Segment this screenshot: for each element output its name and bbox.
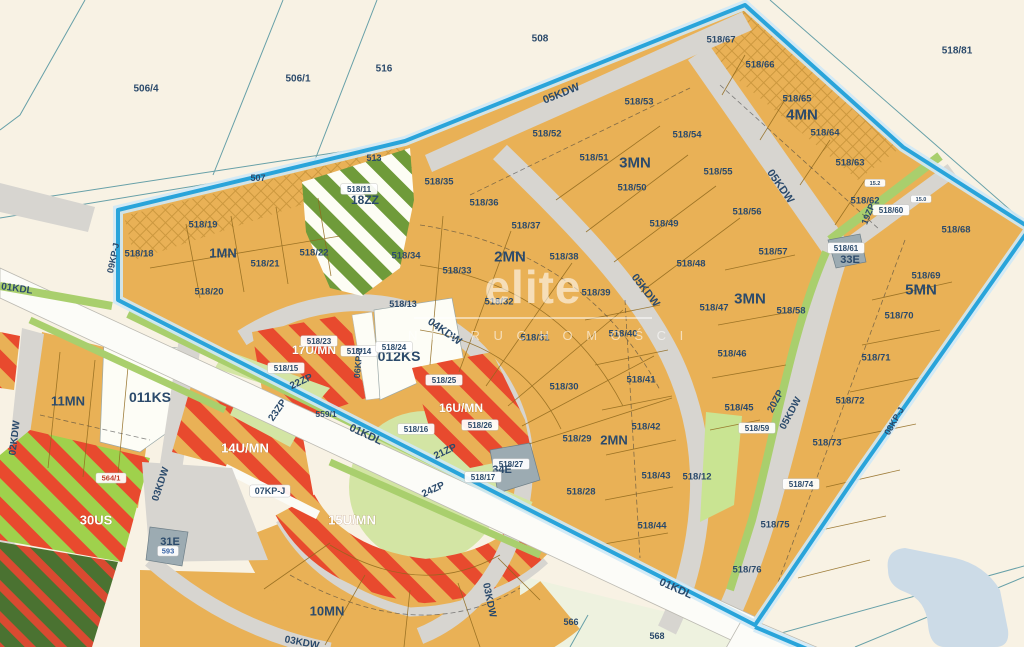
svg-text:593: 593 [162,547,175,556]
map-label: 2MN [494,248,526,265]
map-label: 518/68 [941,224,970,235]
svg-text:566: 566 [563,617,578,627]
svg-text:518/60: 518/60 [879,206,904,215]
svg-text:518/32: 518/32 [484,296,513,307]
svg-text:518/23: 518/23 [307,337,332,346]
svg-text:011KS: 011KS [129,389,171,405]
svg-text:518/58: 518/58 [776,305,805,316]
svg-text:518/19: 518/19 [188,219,217,230]
map-label: 518/57 [758,246,787,257]
svg-text:518/65: 518/65 [782,93,812,104]
map-label: 518/24 [376,342,413,353]
map-label: 518/40 [608,328,637,339]
map-label: 518/70 [884,310,913,321]
svg-text:518/25: 518/25 [432,376,457,385]
map-label: 518/75 [760,519,790,530]
svg-text:15U/MN: 15U/MN [328,513,376,528]
map-label: 518/66 [745,59,774,70]
svg-text:518/59: 518/59 [745,424,770,433]
svg-text:518/30: 518/30 [549,381,578,392]
map-label: 518/36 [469,197,498,208]
map-label: 518/12 [682,471,711,482]
map-label: 518/46 [717,348,746,359]
map-label: 518/59 [739,423,776,434]
svg-text:518/44: 518/44 [637,520,667,531]
svg-text:518/24: 518/24 [382,343,407,352]
map-label: 518/22 [299,247,328,258]
svg-text:518/66: 518/66 [745,59,774,70]
map-label: 011KS [129,389,171,405]
svg-text:518/36: 518/36 [469,197,498,208]
map-label: 518/18 [124,248,153,259]
svg-text:2MN: 2MN [600,433,627,448]
map-label: 518/60 [873,205,910,216]
map-canvas[interactable]: 506/4506/1516508513507518/81568566518/19… [0,0,1024,647]
svg-text:518/47: 518/47 [699,302,728,313]
svg-text:518/70: 518/70 [884,310,913,321]
svg-text:518/12: 518/12 [682,471,711,482]
svg-text:518/63: 518/63 [835,157,864,168]
map-label: 518/48 [676,258,705,269]
svg-text:518/43: 518/43 [641,470,670,481]
map-label: 3MN [734,290,766,307]
svg-text:518/81: 518/81 [942,46,973,57]
map-label: 518/73 [812,437,841,448]
map-label: 518/20 [194,286,223,297]
map-label: 518/50 [617,182,646,193]
svg-text:518/61: 518/61 [834,244,859,253]
svg-text:518/20: 518/20 [194,286,223,297]
svg-text:518/57: 518/57 [758,246,787,257]
map-label: 518/41 [626,374,656,385]
map-label: 518/69 [911,270,940,281]
svg-text:33E: 33E [840,254,860,266]
svg-text:508: 508 [532,34,549,45]
map-label: 2MN [600,433,627,448]
map-label: 559/1 [315,409,337,419]
svg-text:4MN: 4MN [786,106,818,123]
svg-text:518/22: 518/22 [299,247,328,258]
svg-text:30US: 30US [80,513,113,528]
map-label: 518/38 [549,251,578,262]
svg-text:518/55: 518/55 [703,166,733,177]
svg-text:518/33: 518/33 [442,265,471,276]
svg-text:1MN: 1MN [209,246,236,261]
map-label: 518/52 [532,128,561,139]
map-label: 518/39 [581,287,610,298]
svg-text:518/13: 518/13 [389,299,417,309]
map-label: 518/43 [641,470,670,481]
svg-text:07KP-J: 07KP-J [255,486,286,496]
map-label: 593 [158,546,179,556]
map-label: 14U/MN [221,441,269,456]
map-label: 33E [840,254,860,266]
map-label: 518/65 [782,93,812,104]
map-label: 518/25 [426,375,463,386]
svg-text:518/21: 518/21 [250,258,280,269]
map-label: 518/33 [442,265,471,276]
map-label: 518/26 [462,420,499,431]
map-label: 1MN [209,246,236,261]
map-label: 4MN [786,106,818,123]
svg-text:18ZZ: 18ZZ [351,193,379,207]
map-label: 518/56 [732,206,761,217]
map-label: 518/44 [637,520,667,531]
svg-text:11MN: 11MN [51,394,85,409]
svg-text:3MN: 3MN [619,154,651,171]
svg-text:16U/MN: 16U/MN [439,401,483,415]
map-label: 518/63 [835,157,864,168]
svg-text:2MN: 2MN [494,248,526,265]
map-label: 15U/MN [328,513,376,528]
map-label: 518/81 [942,46,973,57]
svg-text:506/1: 506/1 [285,74,310,85]
svg-text:518/26: 518/26 [468,421,493,430]
map-label: 518/53 [624,96,653,107]
map-label: 518/31 [520,332,550,343]
map-label: 518/67 [706,34,735,45]
map-label: 507 [250,173,265,183]
svg-text:518/42: 518/42 [631,421,660,432]
svg-text:518/64: 518/64 [810,127,840,138]
svg-text:518/17: 518/17 [471,473,496,482]
map-label: 518/16 [398,424,435,435]
svg-text:15.0: 15.0 [916,197,927,203]
svg-text:518/67: 518/67 [706,34,735,45]
map-label: 518/49 [649,218,678,229]
map-label: 518/71 [861,352,891,363]
map-label: 568 [649,631,664,641]
map-label: 518/47 [699,302,728,313]
svg-text:518/15: 518/15 [274,364,299,373]
map-label: 518/37 [511,220,540,231]
map-label: 30US [80,513,113,528]
map-label: 518/74 [783,479,820,490]
svg-text:518/68: 518/68 [941,224,970,235]
svg-text:518/53: 518/53 [624,96,653,107]
svg-text:3MN: 3MN [734,290,766,307]
svg-text:518/34: 518/34 [391,250,421,261]
svg-text:5MN: 5MN [905,281,937,298]
map-label: 518/76 [732,564,761,575]
svg-text:518/46: 518/46 [717,348,746,359]
map-label: 516 [376,64,393,75]
svg-text:10MN: 10MN [310,604,345,619]
svg-text:518/75: 518/75 [760,519,790,530]
svg-text:518/37: 518/37 [511,220,540,231]
svg-text:518/48: 518/48 [676,258,705,269]
map-label: 518/15 [268,363,305,374]
map-label: 518/72 [835,395,864,406]
map-label: 518/64 [810,127,840,138]
map-label: 518/23 [301,336,338,347]
map-label: 3MN [619,154,651,171]
map-label: 518/55 [703,166,733,177]
svg-text:559/1: 559/1 [315,409,337,419]
svg-text:518/52: 518/52 [532,128,561,139]
map-label: 07KP-J [250,485,290,497]
svg-text:568: 568 [649,631,664,641]
svg-text:518/18: 518/18 [124,248,153,259]
svg-text:518/40: 518/40 [608,328,637,339]
map-label: 15.0 [911,195,932,203]
map-label: 518/29 [562,433,591,444]
map-label: 11MN [51,394,85,409]
svg-text:518/29: 518/29 [562,433,591,444]
map-label: 518/19 [188,219,217,230]
svg-text:506/4: 506/4 [133,84,158,95]
map-label: 15.2 [865,179,886,187]
map-label: 518/61 [828,243,865,254]
map-label: 518/42 [631,421,660,432]
map-label: 518/34 [391,250,421,261]
map-label: 10MN [310,604,345,619]
map-label: 518/35 [424,176,454,187]
svg-text:518/50: 518/50 [617,182,646,193]
map-label: 506/4 [133,84,158,95]
map-label: 518/30 [549,381,578,392]
map-label: 518/45 [724,402,754,413]
map-label: 518/21 [250,258,280,269]
map-label: 518/28 [566,486,595,497]
map-label: 508 [532,34,549,45]
map-label: 518/51 [579,152,609,163]
svg-text:518/28: 518/28 [566,486,595,497]
map-label: 18ZZ [351,193,379,207]
map-label: 518/54 [672,129,702,140]
svg-text:518/54: 518/54 [672,129,702,140]
svg-text:518/69: 518/69 [911,270,940,281]
svg-text:518/74: 518/74 [789,480,814,489]
svg-text:518/76: 518/76 [732,564,761,575]
map-label: 518/58 [776,305,805,316]
svg-text:518/72: 518/72 [835,395,864,406]
map-viewport: 506/4506/1516508513507518/81568566518/19… [0,0,1024,647]
map-label: 5MN [905,281,937,298]
svg-text:518/38: 518/38 [549,251,578,262]
svg-text:518/41: 518/41 [626,374,656,385]
svg-text:15.2: 15.2 [870,181,881,187]
svg-text:518/35: 518/35 [424,176,454,187]
svg-text:513: 513 [366,153,381,163]
svg-text:518/49: 518/49 [649,218,678,229]
map-label: 566 [563,617,578,627]
svg-text:518/56: 518/56 [732,206,761,217]
map-label: 564/1 [96,473,126,483]
map-label: 16U/MN [439,401,483,415]
svg-text:518/73: 518/73 [812,437,841,448]
map-label: 513 [366,153,381,163]
svg-text:507: 507 [250,173,265,183]
svg-text:518/51: 518/51 [579,152,609,163]
map-label: 518/32 [484,296,513,307]
svg-text:518/31: 518/31 [520,332,550,343]
svg-text:564/1: 564/1 [102,474,121,483]
svg-text:518/16: 518/16 [404,425,429,434]
svg-text:518/45: 518/45 [724,402,754,413]
svg-text:518/71: 518/71 [861,352,891,363]
map-label: 506/1 [285,74,310,85]
svg-text:14U/MN: 14U/MN [221,441,269,456]
map-label: 518/13 [389,299,417,309]
svg-text:518/39: 518/39 [581,287,610,298]
svg-text:516: 516 [376,64,393,75]
map-label: 518/17 [465,472,502,483]
